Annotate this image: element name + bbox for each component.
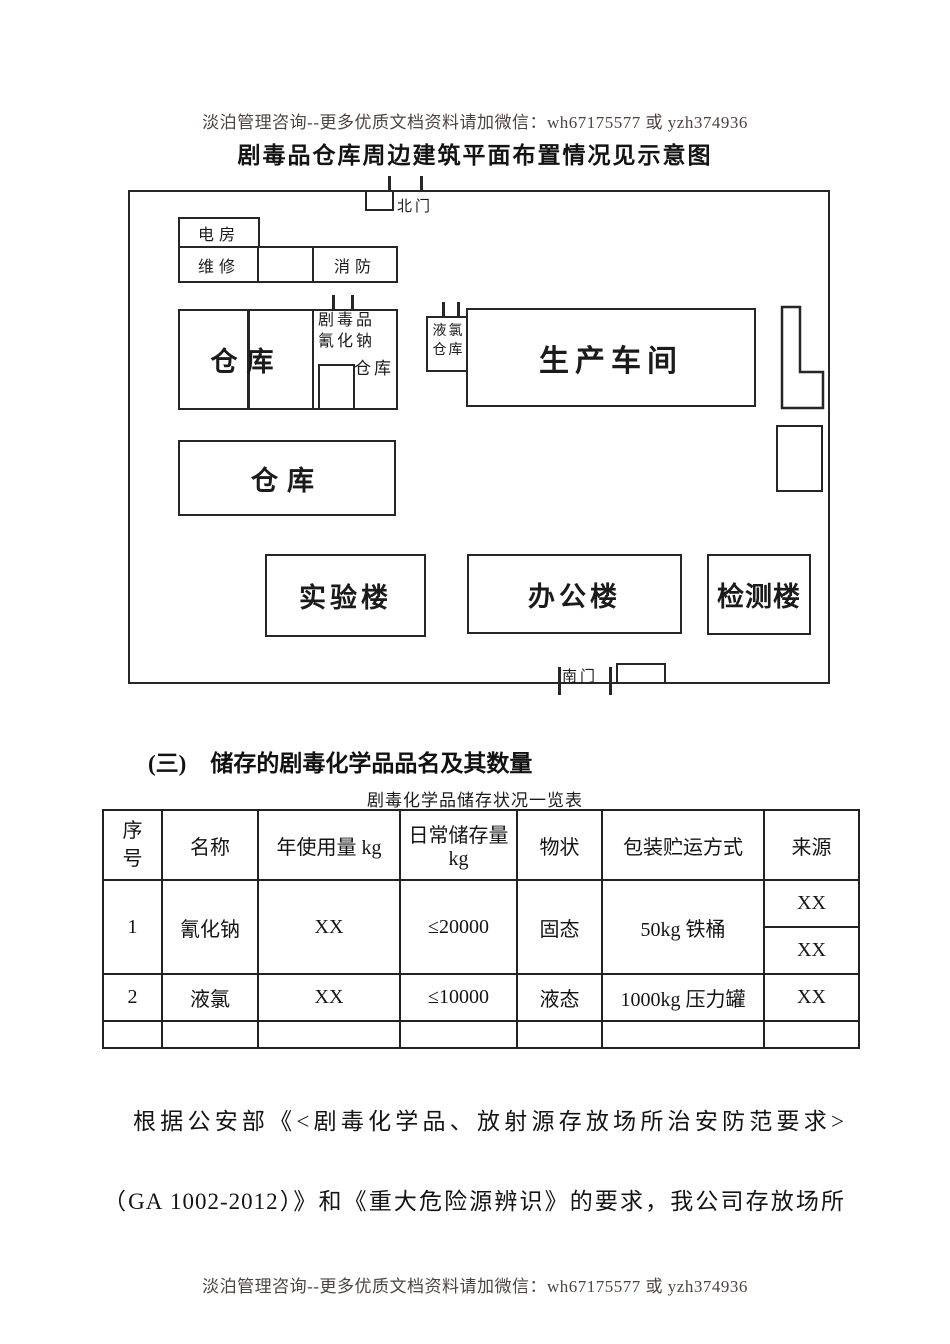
toxic-warehouse-label: 剧毒品 氰化钠 仓库: [318, 310, 394, 379]
header-state: 物状: [517, 810, 602, 880]
footer-note: 淡泊管理咨询--更多优质文档资料请加微信：wh67175577 或 yzh374…: [0, 1272, 950, 1297]
section-number: (三): [148, 751, 186, 776]
toxic-gate-tick-left: [332, 295, 335, 311]
cell-r2-source: XX: [764, 974, 859, 1021]
cell-r1-name: 氰化钠: [162, 880, 258, 974]
testing-building-label: 检测楼: [717, 575, 801, 614]
header-package: 包装贮运方式: [602, 810, 764, 880]
l-shaped-building: [780, 305, 826, 411]
cell-r2-annual: XX: [258, 974, 400, 1021]
cell-r1-source-top: XX: [764, 880, 859, 927]
section-heading: (三)储存的剧毒化学品品名及其数量: [148, 744, 532, 778]
cell-r1-daily: ≤20000: [400, 880, 517, 974]
maintenance-label: 维修: [198, 253, 240, 277]
section-title: 储存的剧毒化学品品名及其数量: [210, 751, 532, 776]
warehouse-1-label: 仓库: [211, 340, 283, 379]
chlorine-gate-tick-right: [457, 302, 460, 318]
page-title: 剧毒品仓库周边建筑平面布置情况见示意图: [0, 136, 950, 170]
maintenance-box: 维修: [178, 246, 260, 283]
cell-r1-annual: XX: [258, 880, 400, 974]
table-row-1a: 1 氰化钠 XX ≤20000 固态 50kg 铁桶 XX: [103, 880, 859, 927]
header-daily: 日常储存量 kg: [400, 810, 517, 880]
production-workshop-label: 生产车间: [539, 336, 683, 380]
document-page: 淡泊管理咨询--更多优质文档资料请加微信：wh67175577 或 yzh374…: [0, 0, 950, 1344]
testing-building-box: 检测楼: [707, 554, 811, 635]
cell-r2-daily: ≤10000: [400, 974, 517, 1021]
cell-r1-no: 1: [103, 880, 162, 974]
toxic-label-line1: 剧毒品: [318, 310, 394, 331]
toxic-label-line2: 氰化钠: [318, 331, 394, 352]
paragraph-line-2: （GA 1002-2012）》和《重大危险源辨识》的要求，我公司存放场所: [103, 1182, 845, 1216]
production-workshop-box: 生产车间: [466, 308, 756, 407]
chlorine-gate-tick-left: [442, 302, 445, 318]
south-gate-tick-right: [609, 667, 612, 695]
cell-r1-package: 50kg 铁桶: [602, 880, 764, 974]
cell-r2-state: 液态: [517, 974, 602, 1021]
table-caption: 剧毒化学品储存状况一览表: [0, 786, 950, 811]
table-header-row: 序号 名称 年使用量 kg 日常储存量 kg 物状 包装贮运方式 来源: [103, 810, 859, 880]
storage-table: 序号 名称 年使用量 kg 日常储存量 kg 物状 包装贮运方式 来源 1 氰化…: [102, 809, 860, 1049]
north-gate-box: [365, 190, 394, 211]
table-empty-row: [103, 1021, 859, 1048]
lab-building-box: 实验楼: [265, 554, 426, 637]
south-gate-box: [616, 663, 666, 684]
paragraph-line-1: 根据公安部《<剧毒化学品、放射源存放场所治安防范要求>: [103, 1102, 845, 1136]
north-gate-tick-right: [420, 176, 423, 192]
header-name: 名称: [162, 810, 258, 880]
header-annual: 年使用量 kg: [258, 810, 400, 880]
electric-room-box: 电房: [178, 217, 260, 248]
cell-r1-source-bottom: XX: [764, 927, 859, 974]
lab-building-label: 实验楼: [299, 576, 392, 615]
cell-r2-no: 2: [103, 974, 162, 1021]
fire-station-label: 消防: [334, 253, 376, 277]
cell-r2-name: 液氯: [162, 974, 258, 1021]
cell-r1-state: 固态: [517, 880, 602, 974]
office-building-box: 办公楼: [467, 554, 682, 634]
office-building-label: 办公楼: [528, 575, 621, 614]
table-row-2: 2 液氯 XX ≤10000 液态 1000kg 压力罐 XX: [103, 974, 859, 1021]
header-note: 淡泊管理咨询--更多优质文档资料请加微信：wh67175577 或 yzh374…: [0, 108, 950, 133]
electric-room-label: 电房: [198, 221, 240, 245]
fire-station-box: 消防: [312, 246, 398, 283]
toxic-label-line3: 仓库: [354, 358, 394, 379]
warehouse-2-box: 仓库: [178, 440, 396, 516]
toxic-gate-tick-right: [351, 295, 354, 311]
south-gate-label: 南门: [562, 665, 598, 686]
cell-r2-package: 1000kg 压力罐: [602, 974, 764, 1021]
header-source: 来源: [764, 810, 859, 880]
unlabeled-box-1: [257, 246, 315, 283]
site-plan-diagram: 北门 电房 维修 消防 仓库 剧毒品 氰化钠 仓库 液氯: [128, 190, 830, 684]
chlorine-label-line1: 液氯: [429, 322, 468, 341]
chlorine-warehouse-label: 液氯 仓库: [429, 322, 468, 360]
chlorine-label-line2: 仓库: [429, 341, 468, 360]
warehouse-2-label: 仓库: [251, 459, 323, 498]
south-gate-tick-left: [558, 667, 561, 695]
north-gate-tick-left: [388, 176, 391, 192]
header-no: 序号: [103, 810, 162, 880]
unlabeled-box-2: [776, 425, 823, 492]
north-gate-label: 北门: [397, 195, 433, 216]
